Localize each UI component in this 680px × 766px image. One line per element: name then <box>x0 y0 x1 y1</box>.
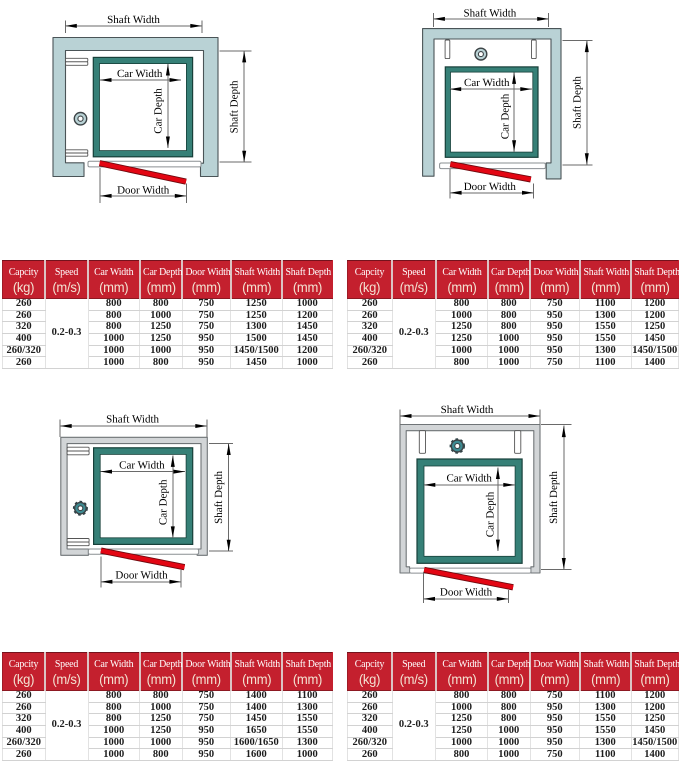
svg-text:Door Width: Door Width <box>117 185 170 197</box>
svg-text:Shaft Depth: Shaft Depth <box>571 76 583 129</box>
svg-text:Car Width: Car Width <box>117 68 163 80</box>
svg-text:Shaft Depth: Shaft Depth <box>229 80 241 133</box>
svg-text:Door Width: Door Width <box>440 587 493 599</box>
svg-text:Shaft Depth: Shaft Depth <box>548 471 560 524</box>
svg-text:Car Depth: Car Depth <box>485 491 497 537</box>
svg-text:Shaft Width: Shaft Width <box>106 414 159 426</box>
svg-text:Door Width: Door Width <box>115 570 168 582</box>
svg-text:Car Depth: Car Depth <box>158 479 170 525</box>
svg-text:Car Depth: Car Depth <box>152 88 164 134</box>
svg-text:Car Width: Car Width <box>464 77 510 89</box>
svg-text:Shaft Depth: Shaft Depth <box>213 470 225 523</box>
svg-text:Car Width: Car Width <box>119 460 165 472</box>
svg-text:Shaft Width: Shaft Width <box>107 14 160 26</box>
svg-text:Car Width: Car Width <box>446 472 492 484</box>
svg-text:Shaft Width: Shaft Width <box>441 404 494 416</box>
svg-text:Car Depth: Car Depth <box>500 93 512 139</box>
svg-text:Shaft Width: Shaft Width <box>463 8 516 20</box>
svg-text:Door Width: Door Width <box>464 181 517 193</box>
